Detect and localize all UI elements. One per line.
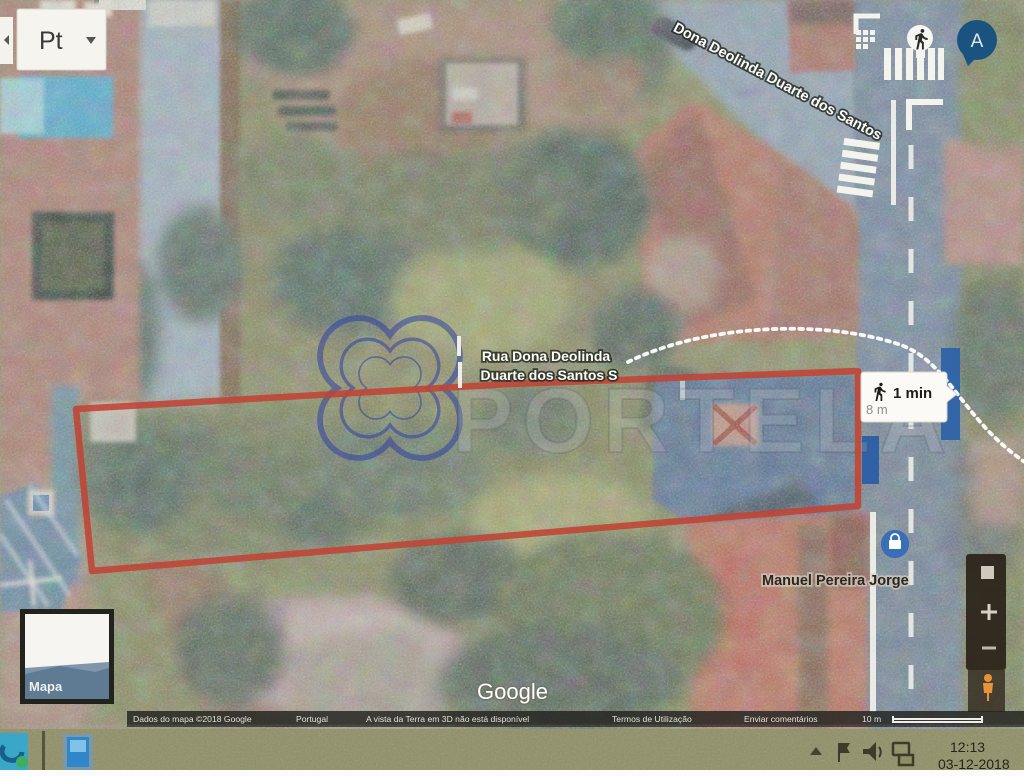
svg-text:1 min: 1 min <box>893 385 932 402</box>
svg-text:Pt: Pt <box>39 27 63 55</box>
svg-text:Mapa: Mapa <box>29 679 63 694</box>
svg-text:12:13: 12:13 <box>950 739 985 755</box>
svg-text:Google: Google <box>477 679 548 704</box>
svg-text:Dados do mapa ©2018 Google: Dados do mapa ©2018 Google <box>133 714 252 724</box>
svg-text:Manuel Pereira Jorge: Manuel Pereira Jorge <box>762 573 909 589</box>
svg-text:03-12-2018: 03-12-2018 <box>938 756 1010 772</box>
svg-text:Portugal: Portugal <box>296 714 328 724</box>
svg-text:8 m: 8 m <box>866 402 888 417</box>
svg-text:10 m: 10 m <box>862 714 881 724</box>
svg-text:A: A <box>971 31 984 52</box>
svg-text:Termos de Utilização: Termos de Utilização <box>612 714 692 724</box>
svg-text:A vista da Terra em 3D não est: A vista da Terra em 3D não está disponív… <box>366 714 529 724</box>
svg-text:Enviar comentários: Enviar comentários <box>744 714 818 724</box>
svg-text:Duarte dos Santos S: Duarte dos Santos S <box>481 367 618 383</box>
svg-text:Rua Dona Deolinda: Rua Dona Deolinda <box>482 348 611 364</box>
